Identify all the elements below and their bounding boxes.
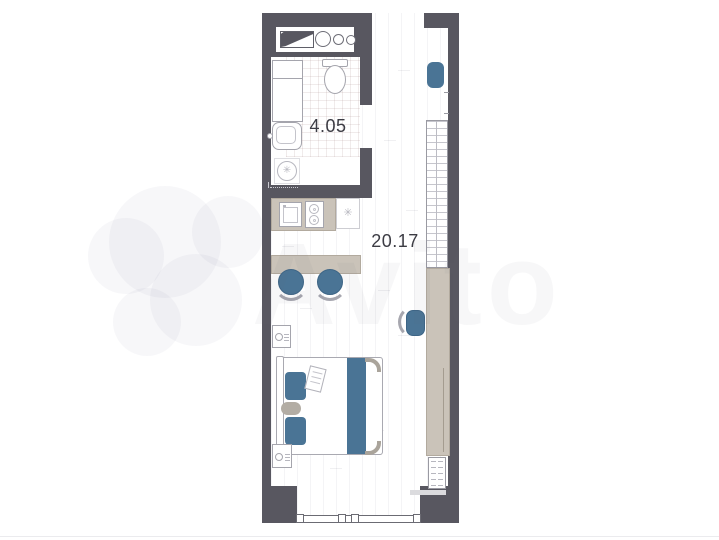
window-mullion-mid-left (338, 514, 346, 523)
wall-bathroom-right-upper (360, 13, 372, 105)
entrance-pouf (427, 62, 444, 88)
burner-top (309, 204, 319, 214)
shaft-pipe-circle-medium (333, 34, 344, 45)
bathroom-area-label: 4.05 (296, 116, 360, 136)
desk-edge-line (443, 368, 444, 452)
main-room-area-label: 20.17 (362, 231, 428, 251)
floorplan-image: ✳ 4.05 ✳ 20.17 (0, 0, 719, 540)
kitchen-faucet-icon (283, 205, 286, 207)
washing-machine-drum: ✳ (277, 161, 297, 181)
window-mullion-mid-right (351, 514, 359, 523)
bolster-cushion (281, 402, 301, 415)
washing-machine: ✳ (274, 158, 300, 184)
bathroom-sink-basin (276, 126, 296, 144)
vent-cabinet: ✳ (336, 198, 360, 229)
shaft-pipe-circle-small (346, 35, 356, 45)
nightstand-top (272, 325, 291, 348)
watermark-logo-circle (88, 218, 164, 294)
burner-bottom (309, 215, 319, 225)
sink-faucet-icon (267, 133, 273, 139)
drawer-pulls-left (431, 461, 436, 487)
lamp-detail-lines (284, 334, 289, 341)
shower (272, 60, 303, 122)
bottom-divider-line (0, 536, 719, 537)
pillow-bottom (285, 417, 306, 445)
door-tick-lower (444, 113, 449, 114)
toilet-bowl (324, 65, 346, 94)
dimension-tick (268, 182, 269, 188)
kitchen-sink (279, 202, 302, 227)
kitchen-sink-basin (283, 207, 298, 223)
stool-left (278, 269, 304, 295)
wall-bottom-left (262, 486, 297, 523)
drawer-pulls-right (438, 461, 443, 487)
watermark-logo-circle (113, 288, 181, 356)
watermark-logo-circle (192, 196, 264, 268)
dimension-mark (270, 187, 298, 188)
vent-icon: ✳ (337, 199, 359, 228)
bathtub-shaft-symbol (280, 31, 314, 48)
wardrobe (426, 120, 448, 268)
cooktop (305, 201, 324, 228)
door-tick-upper (444, 92, 449, 93)
drawer-unit (428, 457, 446, 489)
washing-machine-drum-icon: ✳ (278, 162, 296, 180)
pillow-top (285, 372, 306, 400)
watermark-logo-circle (150, 254, 242, 346)
window-mullion-left (296, 514, 304, 523)
shaft-pipe-circle-large (315, 31, 331, 47)
window-mullion-right (413, 514, 421, 523)
windowsill-strip (410, 490, 446, 495)
lamp-detail-lines (285, 454, 290, 461)
desk (426, 268, 450, 456)
shaft-ramp-shape (281, 32, 313, 47)
wall-top-right (424, 13, 459, 28)
lamp-icon (275, 333, 283, 341)
watermark-logo-circle (109, 186, 221, 298)
blanket (347, 358, 366, 454)
stool-right (317, 269, 343, 295)
desk-chair (406, 310, 425, 336)
shower-shelf-line (273, 78, 302, 79)
wall-left (262, 13, 271, 505)
lamp-icon (275, 453, 283, 461)
nightstand-bottom (272, 444, 292, 468)
